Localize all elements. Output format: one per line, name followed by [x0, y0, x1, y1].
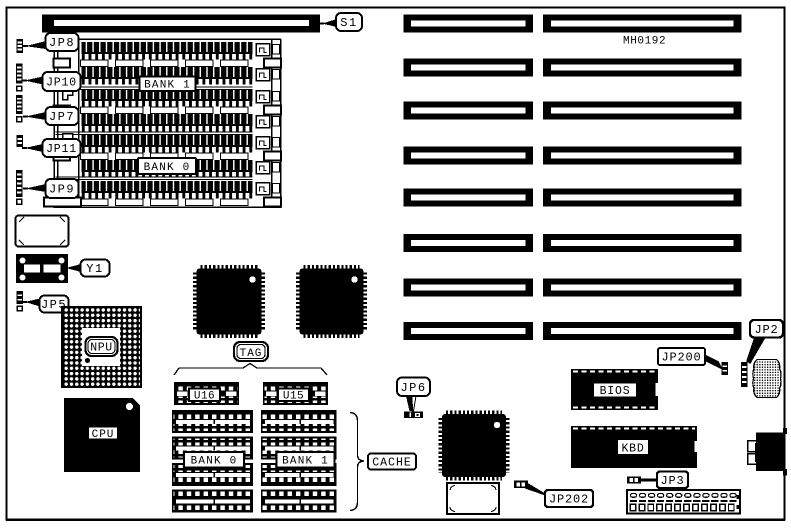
svg-text:JP11: JP11: [46, 143, 77, 156]
svg-text:JP6: JP6: [400, 381, 426, 395]
svg-text:TAG: TAG: [240, 348, 263, 360]
svg-text:BANK 1: BANK 1: [144, 80, 191, 92]
svg-text:JP7: JP7: [49, 110, 75, 124]
svg-text:JP9: JP9: [49, 183, 75, 197]
svg-text:U16: U16: [194, 391, 215, 403]
svg-text:JP10: JP10: [46, 77, 77, 90]
svg-text:JP8: JP8: [49, 36, 75, 50]
svg-text:Y1: Y1: [86, 262, 103, 276]
svg-text:U15: U15: [283, 391, 304, 403]
svg-text:MH0192: MH0192: [623, 36, 666, 48]
svg-text:CACHE: CACHE: [372, 457, 412, 470]
svg-text:BIOS: BIOS: [600, 385, 631, 398]
svg-text:BANK 1: BANK 1: [282, 456, 329, 468]
svg-text:JP200: JP200: [661, 351, 701, 365]
svg-text:BANK 0: BANK 0: [144, 162, 191, 174]
svg-text:S1: S1: [340, 16, 357, 30]
svg-text:CPU: CPU: [92, 429, 115, 441]
svg-text:KBD: KBD: [621, 443, 644, 456]
svg-text:NPU: NPU: [90, 342, 113, 355]
svg-text:JP3: JP3: [660, 474, 684, 488]
svg-text:JP2: JP2: [754, 323, 778, 337]
svg-text:JP202: JP202: [549, 493, 589, 507]
svg-text:BANK 0: BANK 0: [191, 456, 238, 468]
